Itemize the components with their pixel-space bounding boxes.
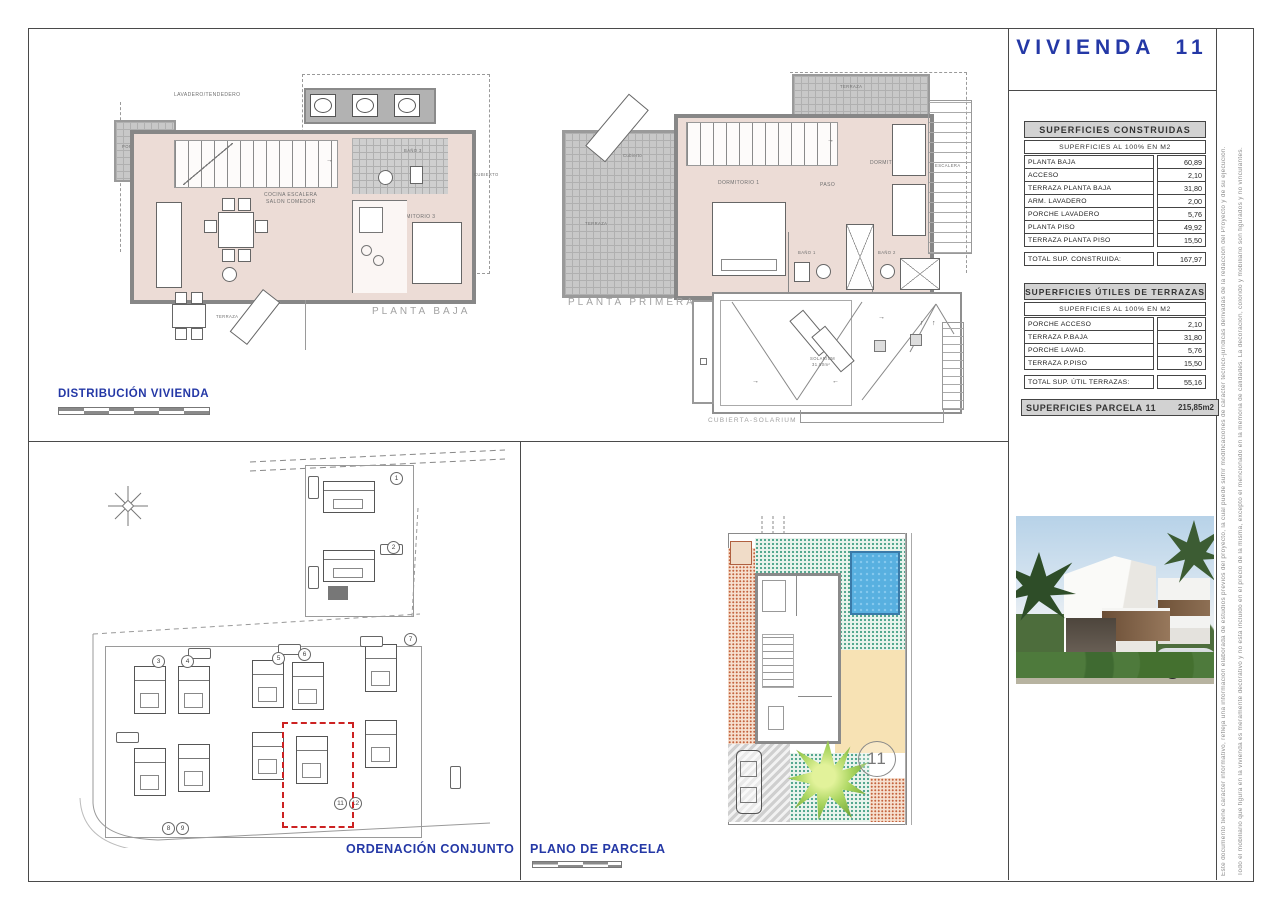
room-label-escalera: ESCALERA (935, 163, 961, 168)
plot-number: 3 (152, 655, 165, 668)
total-value: 55,16 (1157, 375, 1206, 389)
plot-number: 5 (272, 652, 285, 665)
terrace-table (172, 304, 206, 328)
plot-number: 7 (404, 633, 417, 646)
planta-primera-plan: Cubierto TERRAZA TERRAZA → DORMITORIO 1 … (560, 72, 970, 304)
row-label: TERRAZA P.PISO (1024, 356, 1154, 370)
render-photo (1016, 516, 1214, 684)
tree-right-icon (1164, 520, 1214, 584)
shower2 (900, 258, 940, 290)
quadrant-hdivider (28, 441, 1008, 442)
plot-number: 1 (390, 472, 403, 485)
room-label-bano1: BAÑO 1 (798, 250, 816, 255)
row-value: 2,00 (1157, 194, 1206, 208)
planta-primera-caption: PLANTA PRIMERA (568, 297, 696, 308)
solarium-label: SOLARIUM (810, 356, 835, 361)
parcela-surface-label: SUPERFICIES PARCELA 11 (1026, 403, 1156, 413)
house-footprint (755, 573, 841, 744)
row-value: 2,10 (1157, 168, 1206, 182)
strip-divider (1216, 28, 1217, 880)
terrace-area (835, 650, 905, 753)
compass-rose-icon (108, 486, 148, 526)
row-value: 2,10 (1157, 317, 1206, 331)
solarium-stairs (942, 322, 964, 410)
table-superficies-construidas: SUPERFICIES CONSTRUIDAS SUPERFICIES AL 1… (1024, 121, 1206, 266)
room-label-cubierto: CUBIERTO (474, 172, 499, 177)
quadrant-vdivider (520, 441, 521, 880)
table-row: PORCHE LAVAD.5,76 (1024, 343, 1206, 357)
row-value: 60,89 (1157, 155, 1206, 169)
stairs-p1: → (686, 122, 838, 166)
toilet2 (880, 264, 895, 279)
hedge (1016, 652, 1214, 678)
table-subtitle: SUPERFICIES AL 100% EN M2 (1024, 302, 1206, 316)
paved-patch (870, 778, 905, 822)
table-row: TERRAZA P.BAJA31,80 (1024, 330, 1206, 344)
total-label: TOTAL SUP. ÚTIL TERRAZAS: (1024, 375, 1154, 389)
table-total-row: TOTAL SUP. ÚTIL TERRAZAS: 55,16 (1024, 375, 1206, 389)
round-stool (222, 267, 237, 282)
sheet-title: VIVIENDA 11 (1008, 36, 1216, 60)
shower (846, 224, 874, 290)
row-label: PORCHE ACCESO (1024, 317, 1154, 331)
escalera-ext: ESCALERA (928, 100, 972, 254)
sink (794, 262, 810, 282)
stair-cut-line (183, 143, 233, 185)
table-row: TERRAZA P.PISO15,50 (1024, 356, 1206, 370)
room-label-terraza-top: TERRAZA (840, 84, 862, 89)
room-label-cocina: COCINA ESCALERA (264, 192, 317, 198)
solarium-caption: CUBIERTA-SOLARIUM (708, 417, 797, 424)
parcela-caption: PLANO DE PARCELA (530, 842, 666, 856)
terrace-top: TERRAZA (792, 74, 930, 116)
table-row: TERRAZA PLANTA PISO15,50 (1024, 233, 1206, 247)
row-value: 5,76 (1157, 343, 1206, 357)
table-row: PLANTA PISO49,92 (1024, 220, 1206, 234)
row-label: ACCESO (1024, 168, 1154, 182)
room-label-bano2: BAÑO 2 (878, 250, 896, 255)
row-value: 49,92 (1157, 220, 1206, 234)
table-row: ARM. LAVADERO2,00 (1024, 194, 1206, 208)
row-label: TERRAZA PLANTA BAJA (1024, 181, 1154, 195)
vivienda-11-highlight (282, 722, 354, 828)
room-label-paso: PASO (820, 182, 835, 188)
plot-number: 4 (181, 655, 194, 668)
parcela-surface-bar: SUPERFICIES PARCELA 11 215,85m2 (1021, 399, 1219, 416)
house-stairs (762, 634, 794, 688)
total-value: 167,97 (1157, 252, 1206, 266)
plot-number: 6 (298, 648, 311, 661)
table-subtitle: SUPERFICIES AL 100% EN M2 (1024, 140, 1206, 154)
row-value: 5,76 (1157, 207, 1206, 221)
lavadero-strip (304, 88, 436, 124)
row-value: 15,50 (1157, 233, 1206, 247)
toilet (816, 264, 831, 279)
car (736, 750, 762, 814)
utility-dashes (700, 488, 962, 548)
plot-number: 9 (176, 822, 189, 835)
parcela-plan: 11 (700, 488, 962, 840)
row-label: PLANTA BAJA (1024, 155, 1154, 169)
bed (412, 222, 462, 284)
solarium-annex (692, 300, 714, 404)
sofa (156, 202, 182, 288)
table-row: PLANTA BAJA60,89 (1024, 155, 1206, 169)
pool (850, 551, 900, 615)
room-label-lavadero: LAVADERO/TENDEDERO (174, 92, 240, 98)
bano3-room: BAÑO 3 (352, 138, 448, 194)
solarium-plan: SOLARIUM 31,80m² → ← → ↑ ↑ (712, 292, 962, 414)
table-title: SUPERFICIES ÚTILES DE TERRAZAS (1024, 283, 1206, 300)
room-label-cubierto-p1: Cubierto (623, 153, 642, 158)
parcel-number-badge: 11 (858, 741, 896, 777)
row-label: ARM. LAVADERO (1024, 194, 1154, 208)
row-value: 15,50 (1157, 356, 1206, 370)
site-house (323, 550, 375, 582)
plot-line (305, 300, 306, 350)
row-label: TERRAZA PLANTA PISO (1024, 233, 1154, 247)
table-total-row: TOTAL SUP. CONSTRUIDA: 167,97 (1024, 252, 1206, 266)
terrace-p1: Cubierto TERRAZA (562, 130, 680, 298)
legal-note-1: Este documento tiene carácter informativ… (1221, 32, 1235, 876)
panel-divider (1008, 28, 1009, 880)
plan-sheet: LAVADERO/TENDEDERO PORCHE ACC. → BAÑO 3 … (0, 0, 1280, 908)
distribucion-caption: DISTRIBUCIÓN VIVIENDA (58, 388, 209, 400)
row-label: PORCHE LAVADERO (1024, 207, 1154, 221)
paved-strip (728, 548, 755, 744)
room-label-bano3: BAÑO 3 (404, 148, 422, 153)
row-label: TERRAZA P.BAJA (1024, 330, 1154, 344)
room-label-terraza: TERRAZA (216, 314, 238, 319)
table-row: TERRAZA PLANTA BAJA31,80 (1024, 181, 1206, 195)
row-value: 31,80 (1157, 330, 1206, 344)
bed-dorm2a (892, 124, 926, 176)
bed-dorm2b (892, 184, 926, 236)
legal-note-2: Todo el mobiliario que figura en la vivi… (1238, 32, 1252, 876)
scale-bar (58, 407, 210, 415)
bed-dorm1 (712, 202, 786, 276)
ordenacion-plan: 1 2 3 4 5 6 7 8 9 11 12 (60, 448, 505, 848)
site-house (323, 481, 375, 513)
table-row: PORCHE LAVADERO5,76 (1024, 207, 1206, 221)
table-superficies-terrazas: SUPERFICIES ÚTILES DE TERRAZAS SUPERFICI… (1024, 283, 1206, 389)
room-label-salon: SALON COMEDOR (266, 199, 316, 205)
table-body: PLANTA BAJA60,89ACCESO2,10TERRAZA PLANTA… (1024, 155, 1206, 247)
parcela-surface-value: 215,85m2 (1178, 403, 1214, 412)
kitchen-counter (352, 200, 407, 293)
ordenacion-caption: ORDENACIÓN CONJUNTO (346, 842, 514, 856)
room-label-terraza-p1: TERRAZA (585, 221, 607, 226)
table-title: SUPERFICIES CONSTRUIDAS (1024, 121, 1206, 138)
planta-baja-caption: PLANTA BAJA (372, 306, 470, 317)
row-label: PORCHE LAVAD. (1024, 343, 1154, 357)
row-value: 31,80 (1157, 181, 1206, 195)
room-label-dormitorio1: DORMITORIO 1 (718, 180, 759, 186)
table-row: ACCESO2,10 (1024, 168, 1206, 182)
title-divider (1008, 90, 1216, 91)
table-row: PORCHE ACCESO2,10 (1024, 317, 1206, 331)
plot-number: 8 (162, 822, 175, 835)
scale-bar-2 (532, 861, 622, 868)
plot-number: 2 (387, 541, 400, 554)
dining-table (218, 212, 254, 248)
table-body: PORCHE ACCESO2,10TERRAZA P.BAJA31,80PORC… (1024, 317, 1206, 370)
row-label: PLANTA PISO (1024, 220, 1154, 234)
stairs: → (174, 140, 338, 188)
solarium-area: 31,80m² (812, 362, 830, 367)
total-label: TOTAL SUP. CONSTRUIDA: (1024, 252, 1154, 266)
